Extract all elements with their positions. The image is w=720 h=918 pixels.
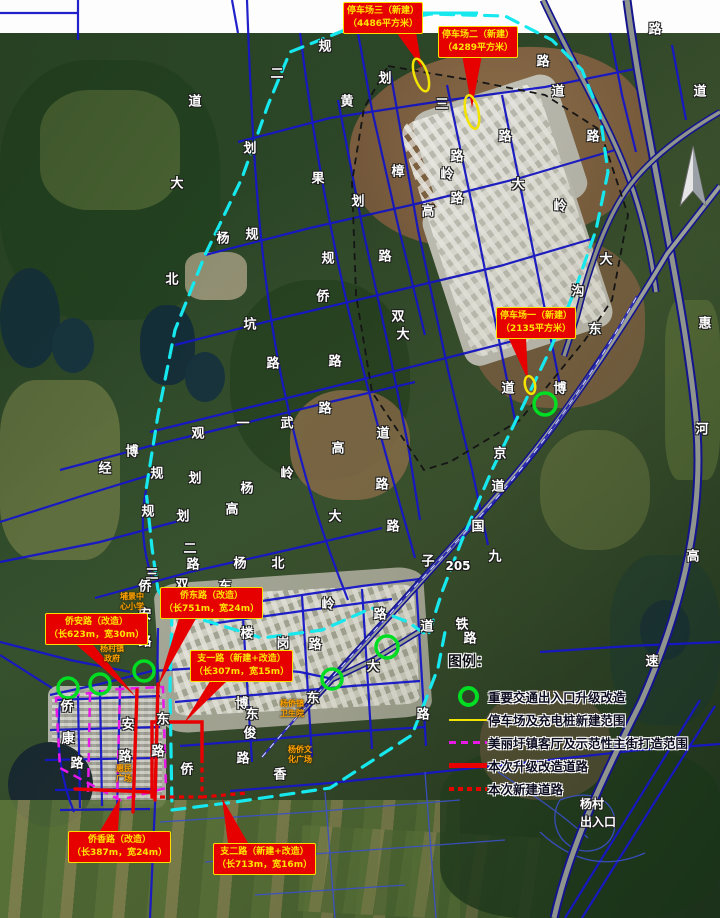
road-label: 路 — [536, 51, 549, 70]
road-label: 205 — [445, 559, 470, 573]
road-label: 道 — [501, 378, 514, 397]
poi-label: 惠民广场 — [116, 764, 132, 784]
road-label: 惠 — [698, 313, 711, 332]
road-label: 路 — [375, 474, 388, 493]
legend-swatch-red-dash — [449, 787, 487, 791]
road-label: 一 — [236, 413, 249, 432]
road-label: 俊 — [243, 723, 256, 742]
callout-zhier-road: 支二路（新建+改造） （长713m，宽16m） — [213, 843, 316, 875]
yangcun-exit-label: 杨村 出入口 — [580, 795, 616, 831]
road-label: 划 — [378, 68, 391, 87]
road-label: 道 — [551, 81, 564, 100]
legend-swatch-yellow-line — [449, 719, 487, 721]
road-label: 康 — [61, 728, 74, 747]
road-label: 河 — [695, 419, 708, 438]
compass-icon — [680, 146, 706, 206]
road-label: 子 — [421, 551, 434, 570]
callout-parking3: 停车场三（新建） （4486平方米） — [343, 2, 423, 34]
legend-swatch-magenta-dash — [449, 741, 487, 744]
road-label: 杨 — [240, 478, 253, 497]
road-label: 樟 — [391, 161, 404, 180]
road-label: 道 — [693, 81, 706, 100]
road-label: 侨 — [180, 759, 193, 778]
road-label: 二 — [270, 63, 283, 82]
road-label: 路 — [186, 554, 199, 573]
legend-item: 重要交通出入口升级改造 — [448, 685, 720, 708]
legend-swatch-red-solid — [449, 763, 487, 768]
callout-qiaoxiang-road: 侨香路（改造） （长387m，宽24m） — [68, 831, 171, 863]
legend-title: 图例： — [448, 651, 720, 671]
legend-swatch-circle — [458, 686, 479, 707]
road-label: 大 — [170, 173, 183, 192]
road-label: 武 — [280, 413, 293, 432]
road-label: 划 — [243, 138, 256, 157]
poi-label: 杨侨文化广场 — [288, 745, 312, 765]
legend-item: 本次升级改造道路 — [448, 754, 720, 777]
road-label: 道 — [188, 91, 201, 110]
road-label: 路 — [118, 746, 131, 765]
road-label: 路 — [586, 126, 599, 145]
legend-items: 重要交通出入口升级改造停车场及充电桩新建范围美丽圩镇客厅及示范性主街打造范围本次… — [448, 685, 720, 800]
poi-label: 杨侨镇卫生院 — [280, 699, 304, 719]
road-label: 东 — [156, 709, 169, 728]
road-label: 路 — [236, 748, 249, 767]
road-label: 侨 — [60, 696, 73, 715]
road-label: 黄 — [340, 91, 353, 110]
planning-map: 道大北二规划黄划果划规杨规路三路路岭樟路高大岭道路路路道大沟东博道京道国九205… — [0, 0, 720, 918]
road-label: 观 — [191, 423, 204, 442]
road-label: 大 — [599, 249, 612, 268]
road-label: 侨 — [316, 286, 329, 305]
road-label: 路 — [386, 516, 399, 535]
road-label: 双 — [391, 306, 404, 325]
legend-label: 美丽圩镇客厅及示范性主街打造范围 — [488, 733, 688, 752]
road-label: 高 — [421, 201, 434, 220]
road-label: 国 — [471, 516, 484, 535]
road-label: 路 — [151, 741, 164, 760]
road-label: 高 — [225, 499, 238, 518]
road-label: 规 — [141, 501, 154, 520]
road-label: 杨 — [216, 228, 229, 247]
road-label: 路 — [70, 753, 83, 772]
road-label: 九 — [488, 546, 501, 565]
legend-item: 美丽圩镇客厅及示范性主街打造范围 — [448, 731, 720, 754]
legend-label: 重要交通出入口升级改造 — [488, 687, 626, 706]
road-label: 三 — [435, 94, 448, 113]
road-label: 北 — [271, 553, 284, 572]
road-label: 东 — [306, 688, 319, 707]
road-label: 香 — [273, 764, 286, 783]
callout-parking2: 停车场二（新建） （4289平方米） — [438, 26, 518, 58]
road-label: 大 — [328, 506, 341, 525]
road-label: 路 — [318, 398, 331, 417]
road-label: 大 — [366, 656, 379, 675]
road-label: 划 — [351, 191, 364, 210]
road-label: 博 — [553, 378, 566, 397]
road-label: 划 — [176, 506, 189, 525]
legend-label: 本次新建道路 — [488, 779, 563, 798]
legend-item: 停车场及充电桩新建范围 — [448, 708, 720, 731]
road-label: 规 — [321, 248, 334, 267]
road-label: 大 — [396, 324, 409, 343]
road-label: 划 — [188, 468, 201, 487]
road-label: 路 — [463, 628, 476, 647]
legend: 图例： 重要交通出入口升级改造停车场及充电桩新建范围美丽圩镇客厅及示范性主街打造… — [448, 651, 720, 800]
callout-qiaodong-road: 侨东路（改造） （长751m，宽24m） — [160, 587, 263, 619]
road-label: 沟 — [571, 281, 584, 300]
road-label: 路 — [378, 246, 391, 265]
legend-label: 本次升级改造道路 — [488, 756, 588, 775]
legend-label: 停车场及充电桩新建范围 — [488, 710, 626, 729]
road-label: 道 — [420, 616, 433, 635]
road-label: 路 — [648, 19, 661, 38]
road-label: 路 — [373, 604, 386, 623]
road-label: 坑 — [243, 314, 256, 333]
road-label: 大 — [511, 174, 524, 193]
road-label: 岭 — [440, 164, 453, 183]
road-label: 道 — [491, 476, 504, 495]
road-label: 岭 — [280, 463, 293, 482]
road-label: 博 — [125, 441, 138, 460]
upgraded-roads — [75, 684, 202, 812]
road-label: 路 — [450, 146, 463, 165]
road-label: 路 — [450, 188, 463, 207]
road-label: 高 — [331, 438, 344, 457]
callout-qiaoan-road: 侨安路（改造） （长623m，宽30m） — [45, 613, 148, 645]
road-label: 果 — [311, 168, 324, 187]
road-label: 路 — [308, 634, 321, 653]
road-label: 规 — [245, 224, 258, 243]
road-label: 东 — [588, 319, 601, 338]
road-label: 京 — [493, 443, 506, 462]
road-label: 规 — [318, 36, 331, 55]
callout-zhiyi-road: 支一路（新建+改造） （长307m，宽15m） — [190, 650, 293, 682]
poi-label: 杨村镇政府 — [100, 644, 124, 664]
road-label: 岗 — [276, 633, 289, 652]
road-label: 东 — [245, 704, 258, 723]
road-label: 规 — [150, 463, 163, 482]
road-label: 道 — [376, 423, 389, 442]
road-label: 高 — [686, 546, 699, 565]
road-label: 楼 — [240, 623, 253, 642]
poi-label: 埔景中心小学 — [120, 592, 144, 612]
road-label: 岭 — [321, 594, 334, 613]
road-label: 杨 — [233, 553, 246, 572]
legend-item: 本次新建道路 — [448, 777, 720, 800]
road-label: 经 — [98, 458, 111, 477]
road-label: 路 — [416, 704, 429, 723]
road-label: 路 — [266, 353, 279, 372]
road-label: 北 — [165, 269, 178, 288]
callout-parking1: 停车场一（新建） （2135平方米） — [496, 307, 576, 339]
road-label: 路 — [498, 126, 511, 145]
road-label: 安 — [121, 714, 134, 733]
road-label: 岭 — [553, 196, 566, 215]
road-label: 路 — [328, 351, 341, 370]
